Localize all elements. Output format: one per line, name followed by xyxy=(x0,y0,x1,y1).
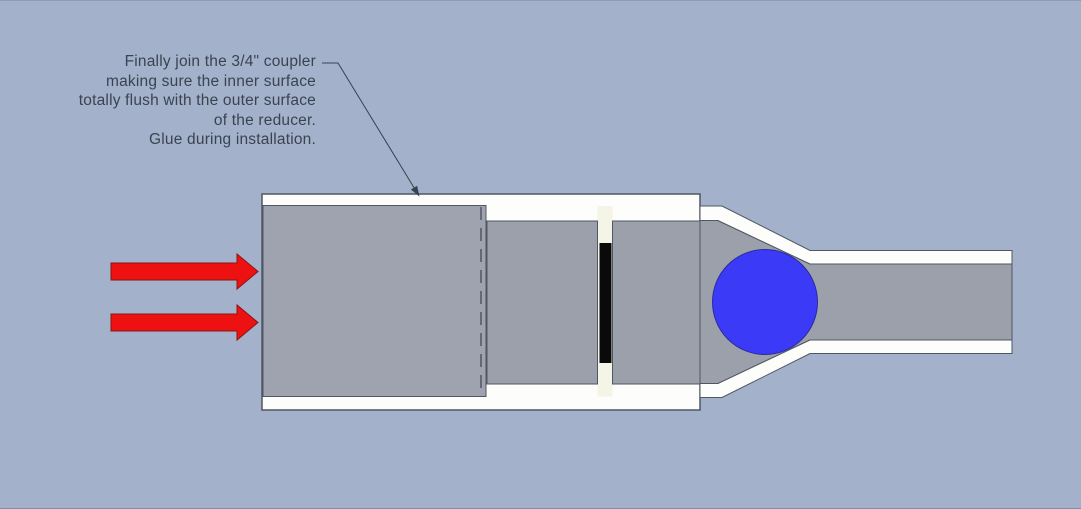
annotation-line: totally flush with the outer surface xyxy=(28,91,316,111)
annotation-line: Glue during installation. xyxy=(28,130,316,150)
annotation-text: Finally join the 3/4" coupler making sur… xyxy=(28,52,316,150)
check-ball xyxy=(713,250,818,355)
annotation-line: of the reducer. xyxy=(28,111,316,131)
annotation-line: Finally join the 3/4" coupler xyxy=(28,52,316,72)
pipe-left xyxy=(263,206,486,397)
annotation-line: making sure the inner surface xyxy=(28,72,316,92)
cad-diagram-page: Finally join the 3/4" coupler making sur… xyxy=(0,0,1081,509)
pipe-middle-left xyxy=(487,221,598,384)
pipe-middle-right xyxy=(613,221,701,384)
stop-washer xyxy=(600,243,612,363)
